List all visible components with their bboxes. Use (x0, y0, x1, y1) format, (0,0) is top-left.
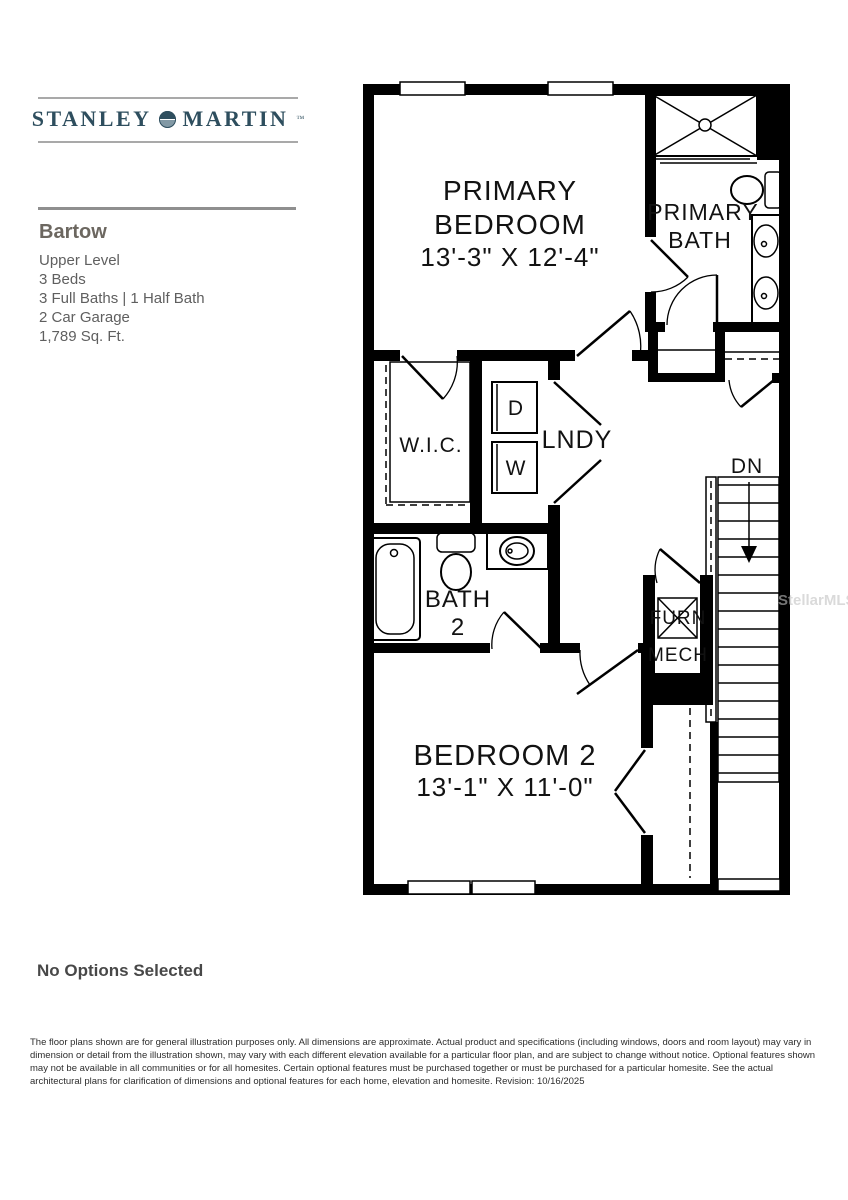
wall (648, 332, 658, 373)
wall (540, 643, 580, 653)
wall (643, 575, 655, 585)
sink (754, 225, 778, 257)
wall (643, 673, 713, 705)
wall (645, 322, 665, 332)
door-leaf (577, 311, 630, 356)
wall (772, 373, 788, 383)
door-leaf (504, 612, 542, 649)
dryer-label: D (508, 397, 524, 420)
floorplan-drawing: PRIMARY BEDROOM 13'-3" X 12'-4" PRIMARY … (0, 0, 848, 1200)
wall (363, 84, 374, 895)
door-leaf (577, 650, 638, 694)
window (408, 881, 470, 894)
bedroom2-label: BEDROOM 2 (413, 740, 596, 772)
primary-bedroom-label: BEDROOM (434, 209, 586, 240)
washer-label: W (506, 457, 527, 480)
wall (374, 350, 400, 361)
wall (548, 361, 560, 380)
bath2-label: BATH (425, 586, 491, 613)
bath2-label: 2 (451, 614, 465, 641)
sink-inner (506, 543, 528, 559)
wall (548, 505, 560, 523)
tub-drain (391, 550, 398, 557)
door-leaf (741, 380, 774, 407)
door-leaf (554, 382, 601, 425)
wall (548, 534, 560, 653)
stair-direction-arrow (741, 546, 757, 563)
closet-shelf (390, 362, 470, 502)
sink-drain (508, 549, 512, 553)
door-leaf (615, 750, 645, 791)
shower-drain (699, 119, 711, 131)
stairs-dn-label: DN (731, 455, 763, 478)
wall (374, 643, 490, 653)
wall (648, 373, 725, 382)
mech-label: MECH (648, 645, 708, 666)
wall (457, 350, 575, 361)
door-swing (655, 549, 660, 583)
toilet-tank (437, 533, 475, 552)
wall (641, 653, 653, 748)
furn-label: FURN (650, 608, 707, 629)
door-swing (729, 380, 741, 407)
primary-bedroom-label: PRIMARY (443, 175, 577, 206)
door-leaf (615, 793, 645, 833)
vanity (487, 533, 548, 569)
door-swing (492, 612, 504, 649)
wall (710, 722, 718, 884)
primary-bath-label: BATH (668, 227, 732, 253)
door-swing (580, 650, 590, 685)
sink (754, 277, 778, 309)
bathtub-inner (376, 544, 414, 634)
sink (500, 537, 534, 565)
window (718, 879, 780, 891)
window (548, 82, 613, 95)
wall (645, 292, 656, 325)
wall (641, 835, 653, 884)
window (400, 82, 465, 95)
bedroom2-dims: 13'-1" X 11'-0" (416, 772, 593, 802)
door-swing (667, 275, 717, 325)
door-leaf (660, 549, 700, 583)
sink-drain (762, 242, 767, 247)
wall (715, 332, 725, 373)
door-leaf (554, 460, 601, 503)
toilet-bowl (441, 554, 471, 590)
door-swing (630, 311, 641, 356)
watermark: StellarMLS (778, 592, 848, 609)
window (472, 881, 535, 894)
laundry-label: LNDY (542, 426, 613, 454)
wic-label: W.I.C. (399, 434, 462, 457)
primary-bath-label: PRIMARY (647, 199, 758, 225)
primary-bedroom-dims: 13'-3" X 12'-4" (420, 242, 599, 272)
floorplan-sheet: STANLEY MARTIN ™ Bartow Upper Level 3 Be… (0, 0, 848, 1200)
wall (470, 361, 482, 523)
sink-drain (762, 294, 767, 299)
